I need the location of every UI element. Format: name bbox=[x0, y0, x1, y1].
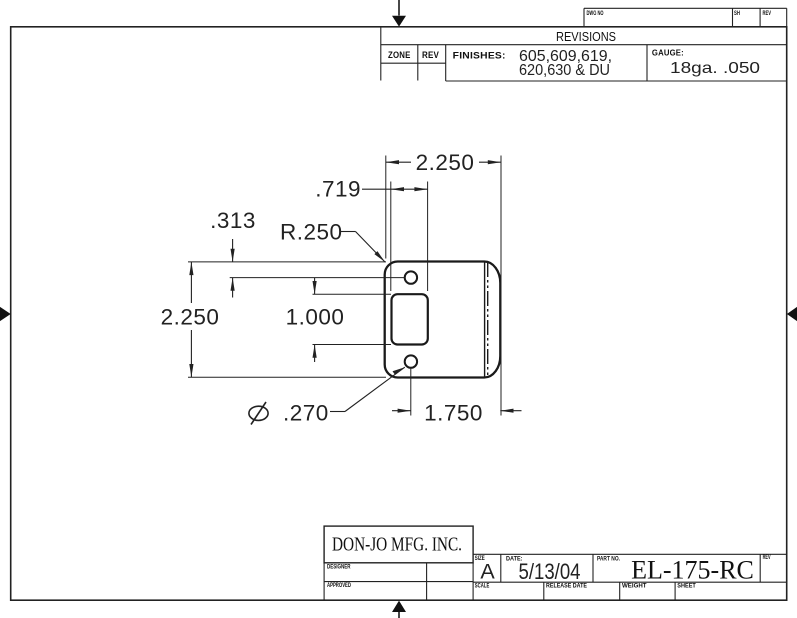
svg-text:620,630 & DU: 620,630 & DU bbox=[519, 62, 610, 79]
svg-text:SH: SH bbox=[734, 10, 740, 17]
svg-text:ZONE: ZONE bbox=[388, 50, 411, 60]
svg-text:1.000: 1.000 bbox=[286, 305, 345, 330]
svg-text:5/13/04: 5/13/04 bbox=[519, 559, 581, 584]
svg-text:.270: .270 bbox=[283, 400, 329, 425]
svg-text:.719: .719 bbox=[315, 177, 361, 202]
svg-text:DWG NO: DWG NO bbox=[587, 10, 604, 17]
svg-text:DESIGNER: DESIGNER bbox=[327, 564, 351, 571]
svg-text:18ga. .050: 18ga. .050 bbox=[670, 60, 760, 77]
svg-text:EL-175-RC: EL-175-RC bbox=[631, 556, 754, 585]
svg-text:R.250: R.250 bbox=[280, 220, 343, 245]
svg-text:SHEET: SHEET bbox=[677, 583, 696, 590]
svg-text:A: A bbox=[480, 560, 495, 584]
svg-text:REV: REV bbox=[422, 50, 439, 60]
svg-text:REV: REV bbox=[763, 10, 772, 17]
svg-text:RELEASE DATE: RELEASE DATE bbox=[546, 583, 588, 590]
svg-text:GAUGE:: GAUGE: bbox=[652, 47, 684, 57]
svg-text:APPROVED: APPROVED bbox=[327, 582, 351, 589]
svg-text:REV: REV bbox=[763, 554, 771, 561]
svg-text:2.250: 2.250 bbox=[161, 305, 220, 330]
svg-text:.313: .313 bbox=[210, 208, 256, 233]
svg-text:FINISHES:: FINISHES: bbox=[453, 50, 506, 60]
svg-text:WEIGHT: WEIGHT bbox=[622, 583, 647, 590]
svg-text:2.250: 2.250 bbox=[416, 150, 475, 175]
svg-text:DON-JO MFG. INC.: DON-JO MFG. INC. bbox=[332, 534, 462, 556]
svg-text:PART NO.: PART NO. bbox=[597, 555, 620, 562]
svg-text:REVISIONS: REVISIONS bbox=[556, 29, 616, 44]
svg-text:1.750: 1.750 bbox=[424, 400, 483, 425]
svg-text:SCALE: SCALE bbox=[475, 583, 490, 590]
